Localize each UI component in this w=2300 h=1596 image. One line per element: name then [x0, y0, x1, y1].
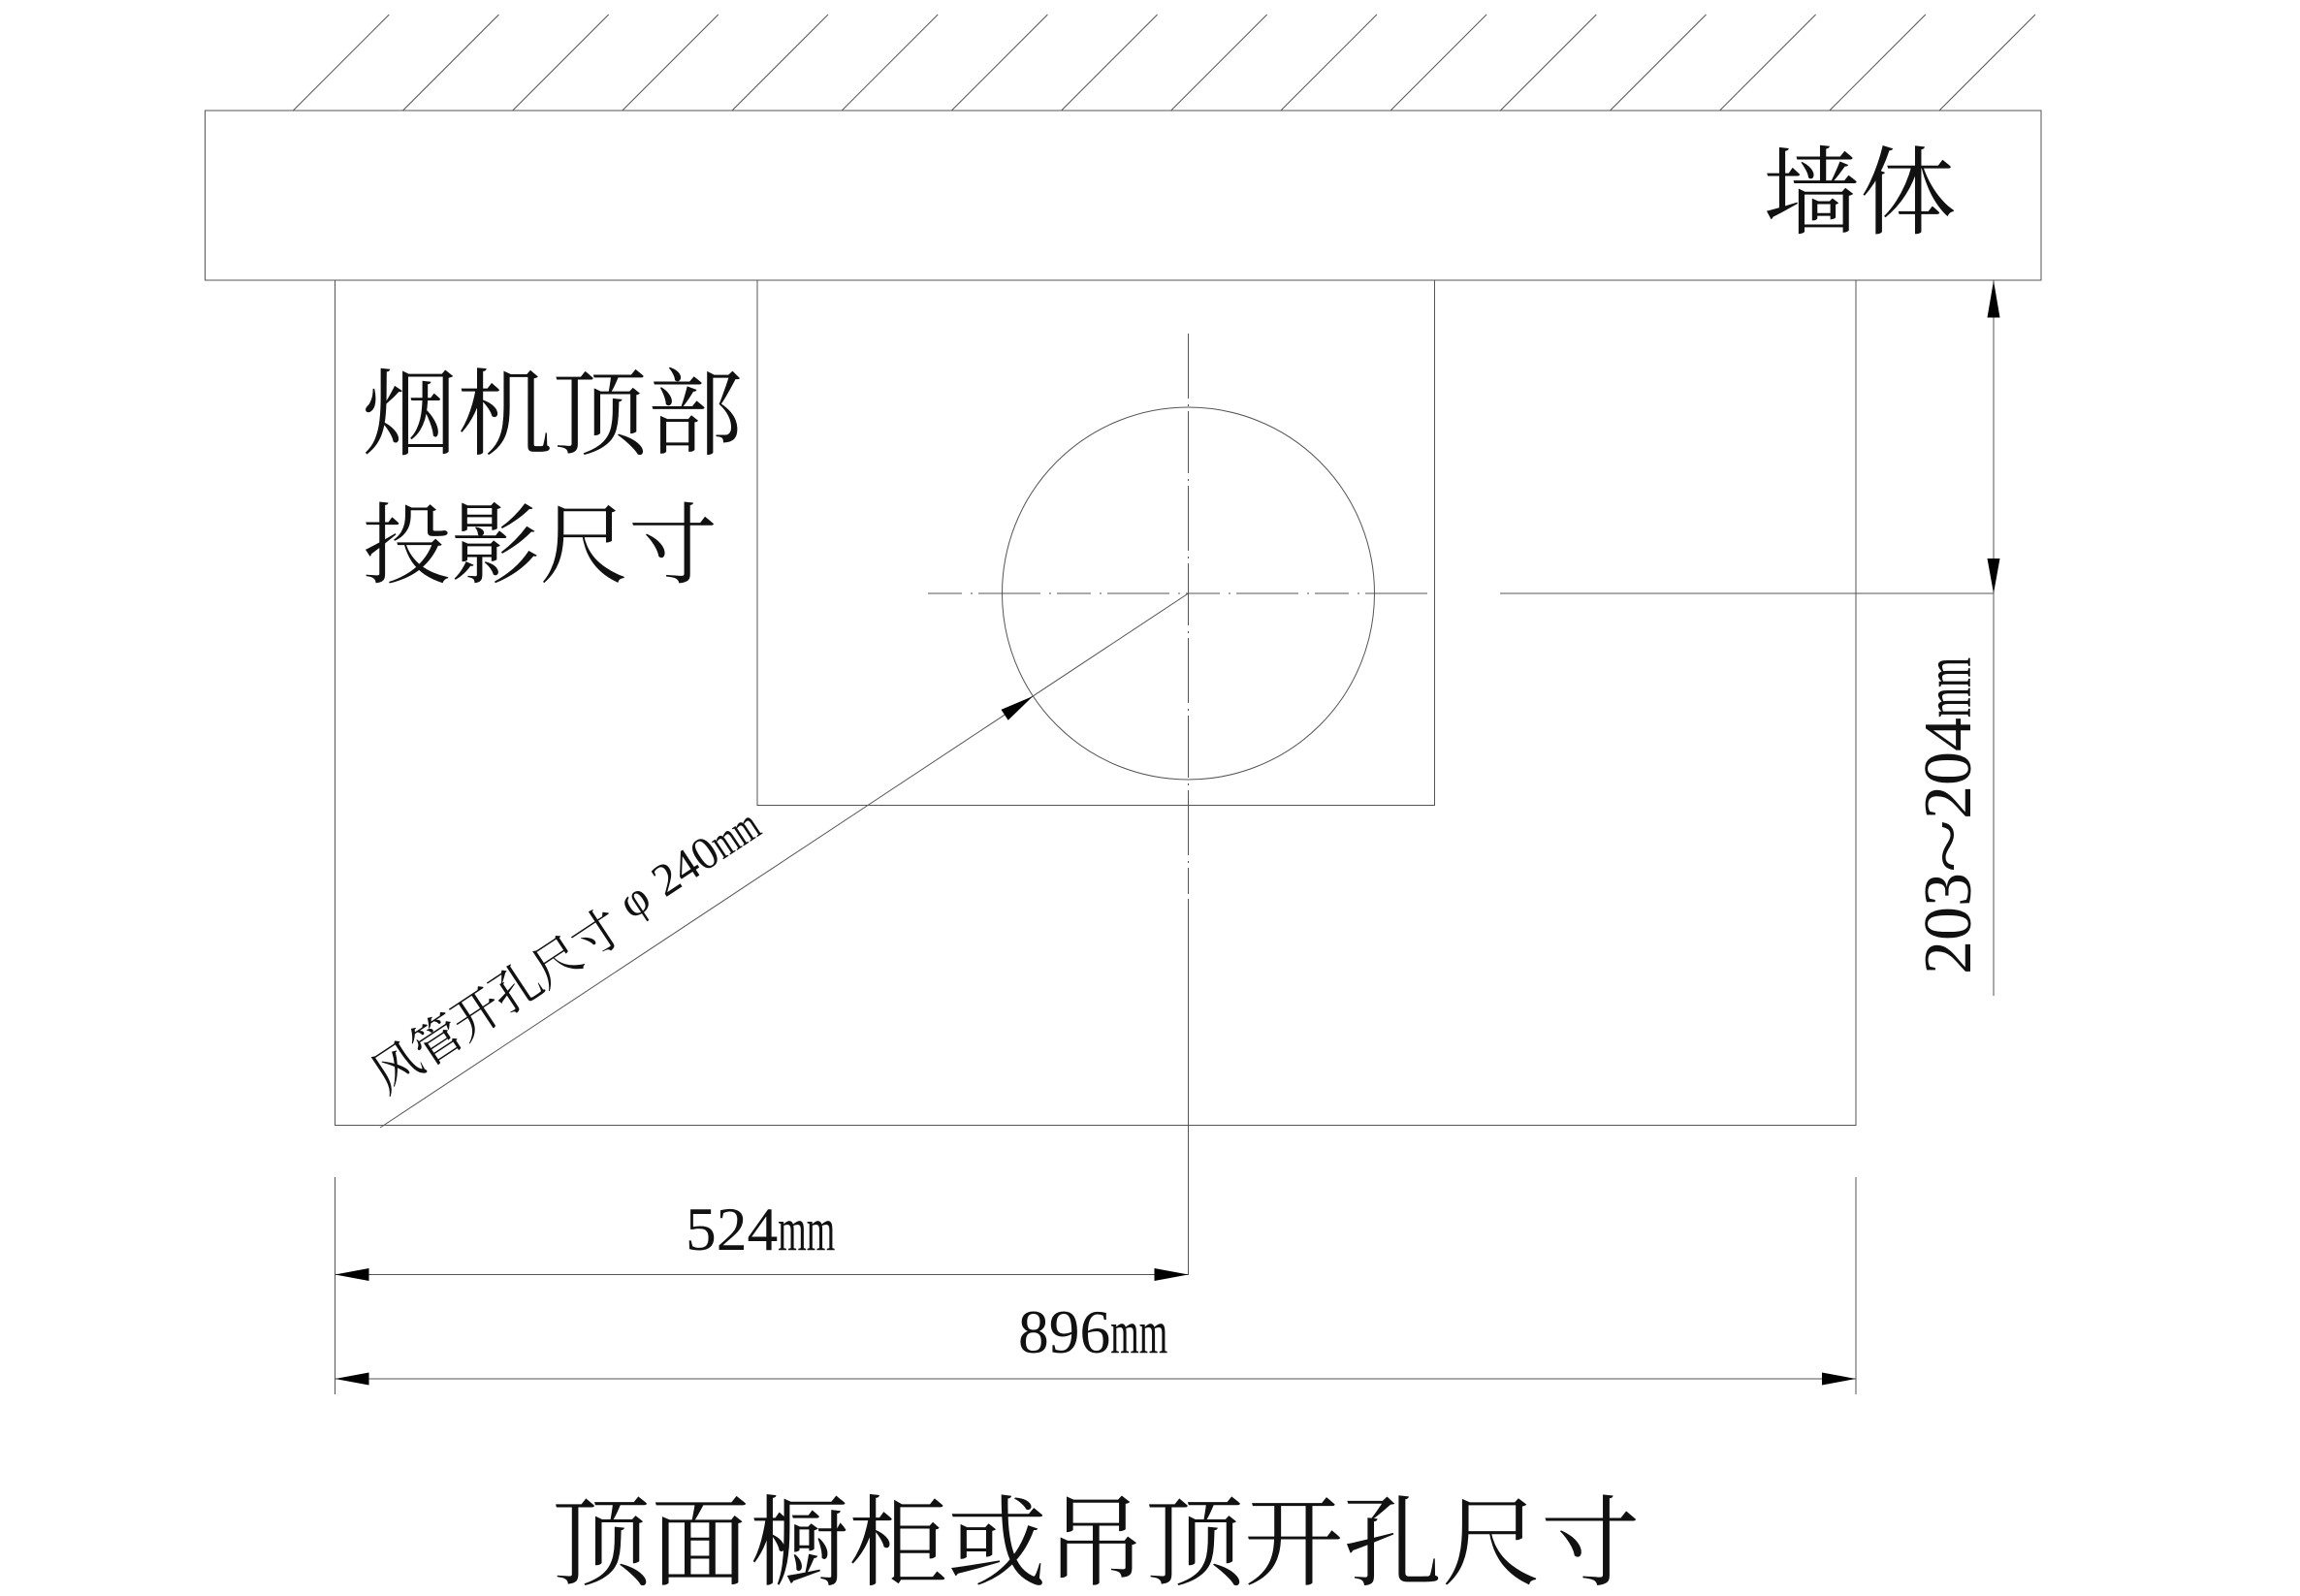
svg-text:524mm: 524mm — [686, 1195, 835, 1263]
svg-text:896mm: 896mm — [1018, 1297, 1167, 1366]
svg-text:203~204mm: 203~204mm — [1911, 657, 1986, 974]
